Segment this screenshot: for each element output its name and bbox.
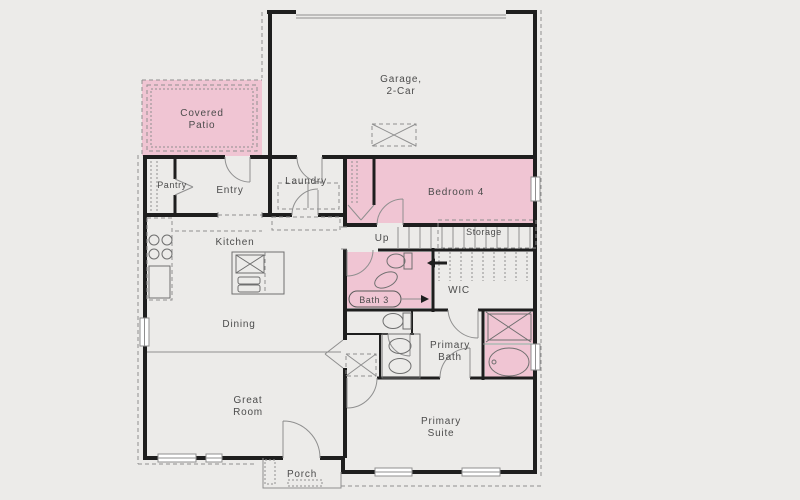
window bbox=[531, 344, 540, 370]
vanity bbox=[382, 334, 420, 378]
window bbox=[375, 468, 412, 476]
vestibule-opening bbox=[325, 340, 343, 368]
sink bbox=[389, 359, 411, 374]
sink-bowl bbox=[238, 277, 260, 284]
porch-steps bbox=[288, 480, 322, 486]
window bbox=[206, 454, 222, 462]
label-great-room-line1: Great bbox=[233, 395, 262, 406]
walls bbox=[143, 10, 537, 474]
linen-closet bbox=[346, 354, 376, 376]
window bbox=[462, 468, 500, 476]
label-great-room-line2: Room bbox=[233, 407, 263, 418]
attic-access bbox=[372, 124, 416, 146]
label-storage: Storage bbox=[466, 227, 502, 237]
label-bedroom-4: Bedroom 4 bbox=[428, 187, 484, 198]
kitchen-island bbox=[232, 252, 284, 294]
label-entry: Entry bbox=[216, 185, 243, 196]
front-door bbox=[283, 421, 320, 458]
label-primary-bath-line1: Primary bbox=[430, 340, 470, 351]
label-primary-bath-line2: Bath bbox=[438, 352, 462, 363]
sink-bowl bbox=[238, 285, 260, 292]
label-dining: Dining bbox=[222, 319, 255, 330]
label-covered-patio-line1: Covered bbox=[180, 108, 223, 119]
primary-suite-door bbox=[347, 378, 377, 408]
laundry-door bbox=[292, 189, 318, 215]
label-up: Up bbox=[375, 233, 389, 244]
wic-door bbox=[448, 310, 478, 338]
label-wic: WIC bbox=[448, 285, 470, 296]
label-primary-suite-line2: Suite bbox=[428, 428, 455, 439]
oven bbox=[149, 266, 170, 298]
garage-door bbox=[296, 15, 506, 18]
toilet bbox=[383, 314, 403, 329]
window bbox=[140, 318, 149, 346]
label-bath-3: Bath 3 bbox=[359, 295, 389, 305]
porch-column bbox=[265, 460, 275, 484]
label-pantry: Pantry bbox=[157, 180, 187, 190]
label-covered-patio-line2: Patio bbox=[189, 120, 216, 131]
label-garage-line2: 2-Car bbox=[386, 86, 415, 97]
label-laundry: Laundry bbox=[285, 176, 327, 187]
label-garage-line1: Garage, bbox=[380, 74, 422, 85]
stair-opening-jambs bbox=[341, 227, 347, 249]
floor-plan-canvas: Garage, 2-Car Covered Patio Pantry Entry… bbox=[0, 0, 800, 500]
kitchen-cased-opening bbox=[218, 212, 262, 218]
window bbox=[531, 177, 540, 201]
pantry-shelves bbox=[151, 161, 157, 213]
label-porch: Porch bbox=[287, 469, 317, 480]
label-primary-suite-line1: Primary bbox=[421, 416, 461, 427]
sink bbox=[389, 339, 411, 354]
toilet-room-door bbox=[388, 334, 410, 356]
floor-plan: Garage, 2-Car Covered Patio Pantry Entry… bbox=[0, 0, 800, 500]
window bbox=[158, 454, 196, 462]
label-kitchen: Kitchen bbox=[216, 237, 255, 248]
patio-door bbox=[225, 157, 250, 182]
